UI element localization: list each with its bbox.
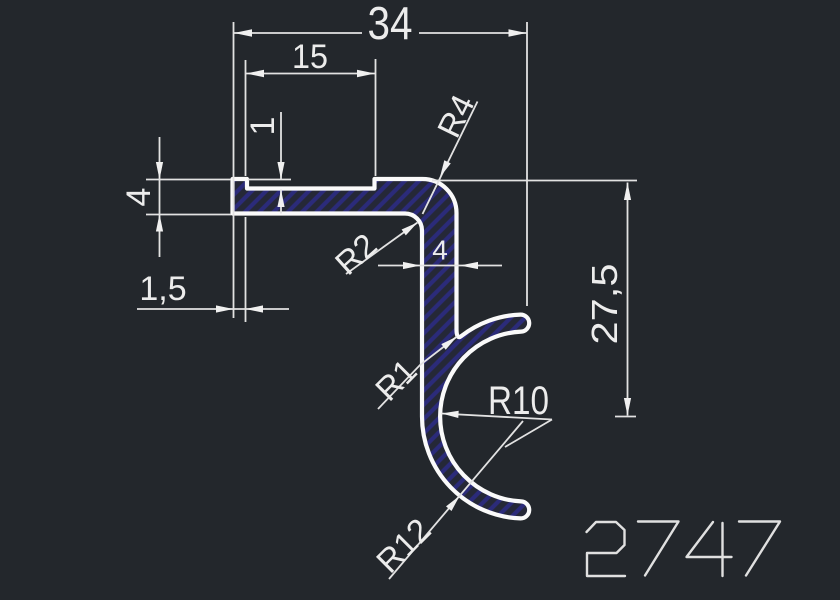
svg-text:15: 15 (292, 38, 328, 76)
svg-text:27,5: 27,5 (584, 264, 625, 345)
svg-text:1,5: 1,5 (139, 270, 186, 308)
svg-text:R10: R10 (488, 379, 549, 423)
svg-text:4: 4 (432, 235, 448, 266)
svg-text:4: 4 (120, 188, 158, 207)
svg-text:1: 1 (244, 117, 282, 136)
svg-text:34: 34 (368, 0, 413, 49)
